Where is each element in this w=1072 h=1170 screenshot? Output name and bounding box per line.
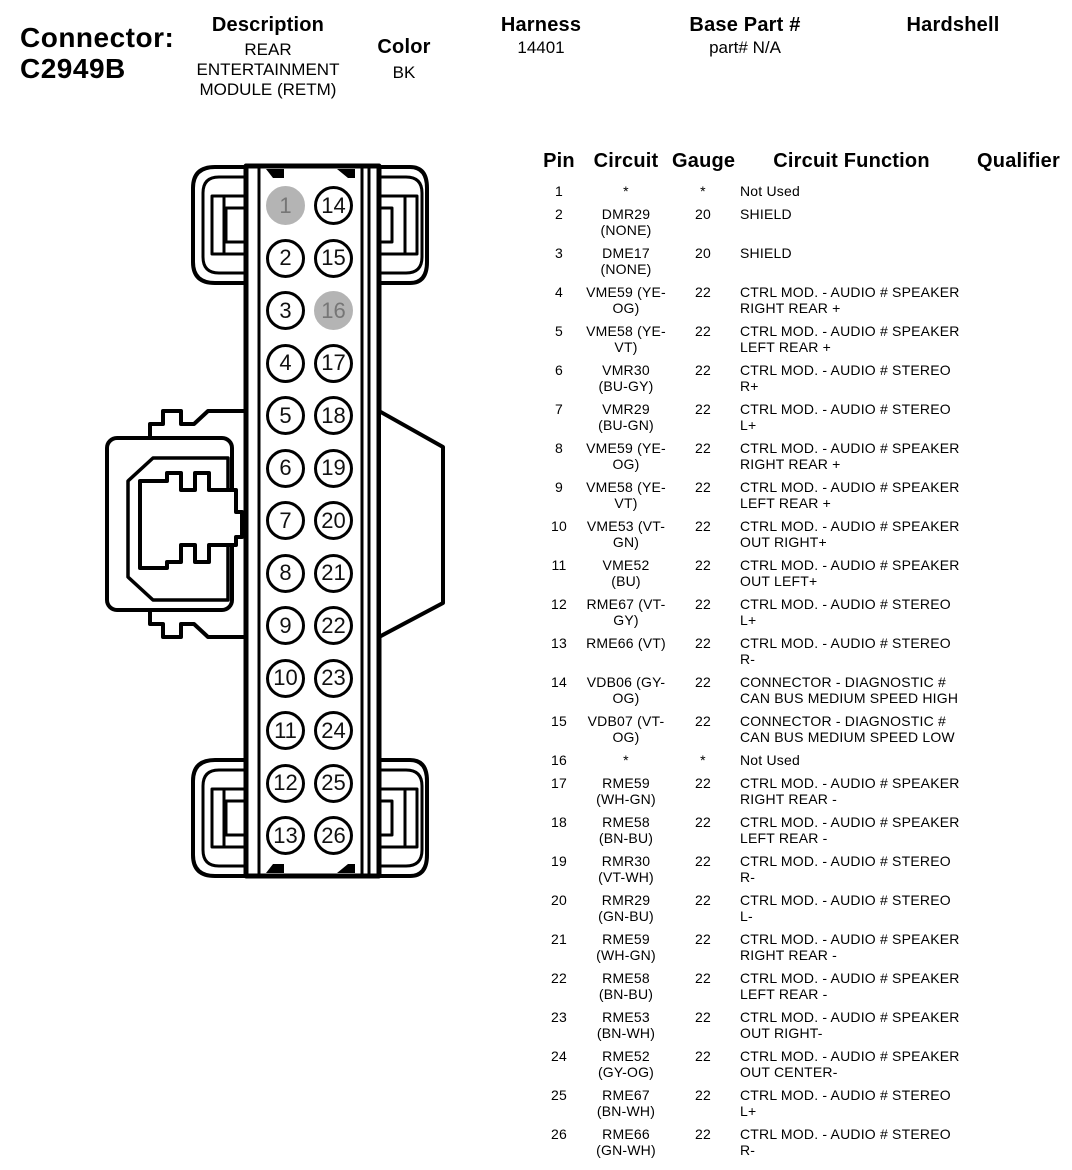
pin-number-cell: 5 [538,320,580,359]
col-header-pin: Pin [538,150,580,180]
pin-row: 1 * * Not Used [538,180,1068,203]
gauge-cell: 20 [672,203,734,242]
pin-circle: 22 [314,606,353,645]
circuit-cell: RME59 (WH-GN) [580,928,672,967]
gauge-cell: 22 [672,359,734,398]
circuit-function-cell: CTRL MOD. - AUDIO # STEREO L- [734,889,969,928]
connector-pinout-page: Connector: C2949B Description REAR ENTER… [0,0,1072,1170]
circuit-function-cell: CTRL MOD. - AUDIO # STEREO R- [734,850,969,889]
circuit-function-cell: CTRL MOD. - AUDIO # SPEAKER LEFT REAR + [734,320,969,359]
gauge-cell: 22 [672,398,734,437]
qualifier-cell [969,772,1068,811]
gauge-cell: 22 [672,476,734,515]
pin-circle: 12 [266,764,305,803]
circuit-cell: RME52 (GY-OG) [580,1045,672,1084]
qualifier-cell [969,320,1068,359]
base-part-value: part# N/A [678,38,812,58]
bottom-right-latch-ear [372,760,427,876]
pin-number-cell: 19 [538,850,580,889]
circuit-cell: VMR29 (BU-GN) [580,398,672,437]
pin-circle: 15 [314,239,353,278]
description-value: REAR ENTERTAINMENT MODULE (RETM) [178,40,358,100]
circuit-function-cell: CTRL MOD. - AUDIO # STEREO L+ [734,398,969,437]
pin-row: 6 VMR30 (BU-GY) 22 CTRL MOD. - AUDIO # S… [538,359,1068,398]
pin-number-cell: 16 [538,749,580,772]
pin-column-left: 1 2 3 4 5 6 7 8 9 10 11 12 13 [266,186,305,855]
pin-column-right: 14 15 16 17 18 19 20 21 22 23 24 25 26 [314,186,353,855]
pin-row: 9 VME58 (YE- VT) 22 CTRL MOD. - AUDIO # … [538,476,1068,515]
col-header-circuit: Circuit [580,150,672,180]
qualifier-cell [969,850,1068,889]
gauge-cell: 22 [672,1045,734,1084]
gauge-cell: 22 [672,1006,734,1045]
circuit-cell: DME17 (NONE) [580,242,672,281]
gauge-cell: 22 [672,710,734,749]
pin-circle: 20 [314,501,353,540]
color-label: Color [372,36,436,59]
side-latch-assembly [107,411,246,637]
pin-circle: 9 [266,606,305,645]
qualifier-cell [969,242,1068,281]
circuit-function-cell: CTRL MOD. - AUDIO # SPEAKER OUT LEFT+ [734,554,969,593]
circuit-function-cell: CONNECTOR - DIAGNOSTIC # CAN BUS MEDIUM … [734,710,969,749]
gauge-cell: 22 [672,850,734,889]
circuit-function-cell: CTRL MOD. - AUDIO # SPEAKER OUT CENTER- [734,1045,969,1084]
pin-circle: 8 [266,554,305,593]
pin-row: 11 VME52 (BU) 22 CTRL MOD. - AUDIO # SPE… [538,554,1068,593]
circuit-cell: * [580,180,672,203]
pin-number-cell: 10 [538,515,580,554]
circuit-function-cell: Not Used [734,749,969,772]
pin-row: 3 DME17 (NONE) 20 SHIELD [538,242,1068,281]
circuit-cell: RME66 (VT) [580,632,672,671]
pin-circle: 3 [266,291,305,330]
circuit-cell: VME59 (YE- OG) [580,281,672,320]
qualifier-cell [969,811,1068,850]
gauge-cell: 22 [672,320,734,359]
pin-row: 21 RME59 (WH-GN) 22 CTRL MOD. - AUDIO # … [538,928,1068,967]
harness-value: 14401 [488,38,594,58]
qualifier-cell [969,632,1068,671]
circuit-cell: VME52 (BU) [580,554,672,593]
pin-number-cell: 26 [538,1123,580,1162]
qualifier-cell [969,967,1068,1006]
pin-number-cell: 20 [538,889,580,928]
pin-row: 2 DMR29 (NONE) 20 SHIELD [538,203,1068,242]
pin-row: 8 VME59 (YE- OG) 22 CTRL MOD. - AUDIO # … [538,437,1068,476]
circuit-function-cell: CTRL MOD. - AUDIO # SPEAKER OUT RIGHT- [734,1006,969,1045]
pin-circle: 11 [266,711,305,750]
pin-number-cell: 21 [538,928,580,967]
circuit-function-cell: CTRL MOD. - AUDIO # SPEAKER LEFT REAR + [734,476,969,515]
pin-row: 17 RME59 (WH-GN) 22 CTRL MOD. - AUDIO # … [538,772,1068,811]
gauge-cell: 22 [672,967,734,1006]
pin-number-cell: 1 [538,180,580,203]
pin-row: 25 RME67 (BN-WH) 22 CTRL MOD. - AUDIO # … [538,1084,1068,1123]
gauge-cell: 22 [672,632,734,671]
key-notch [337,169,355,178]
pin-number-cell: 18 [538,811,580,850]
circuit-function-cell: CTRL MOD. - AUDIO # SPEAKER LEFT REAR - [734,811,969,850]
pin-circle: 4 [266,344,305,383]
pin-row: 26 RME66 (GN-WH) 22 CTRL MOD. - AUDIO # … [538,1123,1068,1162]
qualifier-cell [969,1006,1068,1045]
pin-circle: 5 [266,396,305,435]
pin-circle: 16 [314,291,353,330]
qualifier-cell [969,671,1068,710]
pin-circle: 7 [266,501,305,540]
pin-number-cell: 6 [538,359,580,398]
circuit-function-cell: CTRL MOD. - AUDIO # SPEAKER RIGHT REAR + [734,281,969,320]
key-notch [266,864,284,873]
gauge-cell: 22 [672,593,734,632]
qualifier-cell [969,359,1068,398]
gauge-cell: 22 [672,772,734,811]
circuit-cell: VME58 (YE- VT) [580,320,672,359]
gauge-cell: 22 [672,811,734,850]
circuit-cell: DMR29 (NONE) [580,203,672,242]
circuit-cell: RMR30 (VT-WH) [580,850,672,889]
pin-row: 19 RMR30 (VT-WH) 22 CTRL MOD. - AUDIO # … [538,850,1068,889]
qualifier-cell [969,437,1068,476]
circuit-cell: VDB07 (VT- OG) [580,710,672,749]
pin-number-cell: 7 [538,398,580,437]
pin-number-cell: 14 [538,671,580,710]
circuit-function-cell: CTRL MOD. - AUDIO # STEREO L+ [734,593,969,632]
qualifier-cell [969,889,1068,928]
circuit-function-cell: CTRL MOD. - AUDIO # SPEAKER RIGHT REAR - [734,928,969,967]
qualifier-cell [969,203,1068,242]
circuit-cell: RME59 (WH-GN) [580,772,672,811]
top-right-latch-ear [372,167,427,283]
circuit-cell: RME67 (VT- GY) [580,593,672,632]
gauge-cell: 22 [672,928,734,967]
pin-number-cell: 13 [538,632,580,671]
connector-label: Connector: [20,22,174,53]
qualifier-cell [969,749,1068,772]
pin-circle: 6 [266,449,305,488]
pin-circle: 24 [314,711,353,750]
circuit-function-cell: CTRL MOD. - AUDIO # STEREO L+ [734,1084,969,1123]
circuit-cell: RMR29 (GN-BU) [580,889,672,928]
circuit-function-cell: CTRL MOD. - AUDIO # SPEAKER LEFT REAR - [734,967,969,1006]
circuit-cell: RME58 (BN-BU) [580,967,672,1006]
pin-row: 13 RME66 (VT) 22 CTRL MOD. - AUDIO # STE… [538,632,1068,671]
color-value: BK [372,63,436,83]
pin-row: 22 RME58 (BN-BU) 22 CTRL MOD. - AUDIO # … [538,967,1068,1006]
connector-title: Connector: C2949B [20,22,174,84]
pin-circle: 14 [314,186,353,225]
side-wedge [379,411,443,637]
gauge-cell: 22 [672,554,734,593]
gauge-cell: 22 [672,515,734,554]
pin-number-cell: 2 [538,203,580,242]
pin-circle: 13 [266,816,305,855]
pin-row: 24 RME52 (GY-OG) 22 CTRL MOD. - AUDIO # … [538,1045,1068,1084]
pin-number-cell: 9 [538,476,580,515]
circuit-cell: RME67 (BN-WH) [580,1084,672,1123]
circuit-cell: * [580,749,672,772]
pin-row: 16 * * Not Used [538,749,1068,772]
key-notch [266,169,284,178]
pin-number-cell: 22 [538,967,580,1006]
pin-row: 5 VME58 (YE- VT) 22 CTRL MOD. - AUDIO # … [538,320,1068,359]
pin-number-cell: 4 [538,281,580,320]
qualifier-cell [969,554,1068,593]
gauge-cell: 22 [672,671,734,710]
pin-circle: 2 [266,239,305,278]
pin-table-header-row: Pin Circuit Gauge Circuit Function Quali… [538,150,1068,180]
pin-row: 7 VMR29 (BU-GN) 22 CTRL MOD. - AUDIO # S… [538,398,1068,437]
pin-row: 20 RMR29 (GN-BU) 22 CTRL MOD. - AUDIO # … [538,889,1068,928]
circuit-function-cell: CTRL MOD. - AUDIO # STEREO R- [734,632,969,671]
qualifier-cell [969,928,1068,967]
gauge-cell: 22 [672,437,734,476]
gauge-cell: 22 [672,889,734,928]
harness-label: Harness [488,14,594,37]
base-part-label: Base Part # [678,14,812,37]
pin-row: 23 RME53 (BN-WH) 22 CTRL MOD. - AUDIO # … [538,1006,1068,1045]
key-notch [337,864,355,873]
circuit-function-cell: CTRL MOD. - AUDIO # SPEAKER RIGHT REAR + [734,437,969,476]
pin-circle: 21 [314,554,353,593]
connector-id: C2949B [20,53,174,84]
qualifier-cell [969,710,1068,749]
pin-circle: 18 [314,396,353,435]
qualifier-cell [969,281,1068,320]
description-label: Description [178,14,358,37]
pin-number-cell: 3 [538,242,580,281]
qualifier-cell [969,1123,1068,1162]
pin-table: Pin Circuit Gauge Circuit Function Quali… [538,150,1068,1162]
qualifier-cell [969,515,1068,554]
qualifier-cell [969,398,1068,437]
circuit-function-cell: SHIELD [734,242,969,281]
pin-row: 10 VME53 (VT- GN) 22 CTRL MOD. - AUDIO #… [538,515,1068,554]
gauge-cell: 22 [672,1123,734,1162]
col-header-gauge: Gauge [672,150,734,180]
col-header-qualifier: Qualifier [969,150,1068,180]
gauge-cell: * [672,180,734,203]
top-left-latch-ear [193,167,246,283]
pin-number-cell: 15 [538,710,580,749]
pin-circle: 1 [266,186,305,225]
pin-circle: 25 [314,764,353,803]
qualifier-cell [969,593,1068,632]
circuit-cell: RME58 (BN-BU) [580,811,672,850]
col-header-function: Circuit Function [734,150,969,180]
hardshell-label: Hardshell [898,14,1008,37]
pin-number-cell: 11 [538,554,580,593]
circuit-cell: RME53 (BN-WH) [580,1006,672,1045]
circuit-cell: VME59 (YE- OG) [580,437,672,476]
pin-row: 12 RME67 (VT- GY) 22 CTRL MOD. - AUDIO #… [538,593,1068,632]
circuit-function-cell: CTRL MOD. - AUDIO # SPEAKER OUT RIGHT+ [734,515,969,554]
bottom-left-latch-ear [193,760,246,876]
circuit-function-cell: CONNECTOR - DIAGNOSTIC # CAN BUS MEDIUM … [734,671,969,710]
gauge-cell: 20 [672,242,734,281]
circuit-function-cell: Not Used [734,180,969,203]
circuit-function-cell: CTRL MOD. - AUDIO # SPEAKER RIGHT REAR - [734,772,969,811]
circuit-cell: VMR30 (BU-GY) [580,359,672,398]
pin-row: 14 VDB06 (GY- OG) 22 CONNECTOR - DIAGNOS… [538,671,1068,710]
pin-number-cell: 8 [538,437,580,476]
qualifier-cell [969,476,1068,515]
pin-row: 15 VDB07 (VT- OG) 22 CONNECTOR - DIAGNOS… [538,710,1068,749]
circuit-function-cell: SHIELD [734,203,969,242]
gauge-cell: * [672,749,734,772]
pin-circle: 17 [314,344,353,383]
circuit-function-cell: CTRL MOD. - AUDIO # STEREO R- [734,1123,969,1162]
circuit-cell: RME66 (GN-WH) [580,1123,672,1162]
qualifier-cell [969,1045,1068,1084]
gauge-cell: 22 [672,281,734,320]
qualifier-cell [969,1084,1068,1123]
pin-circle: 26 [314,816,353,855]
pin-row: 4 VME59 (YE- OG) 22 CTRL MOD. - AUDIO # … [538,281,1068,320]
pin-number-cell: 24 [538,1045,580,1084]
qualifier-cell [969,180,1068,203]
circuit-cell: VME58 (YE- VT) [580,476,672,515]
pin-number-cell: 25 [538,1084,580,1123]
circuit-cell: VDB06 (GY- OG) [580,671,672,710]
pin-circle: 10 [266,659,305,698]
pin-circle: 19 [314,449,353,488]
gauge-cell: 22 [672,1084,734,1123]
circuit-cell: VME53 (VT- GN) [580,515,672,554]
pin-row: 18 RME58 (BN-BU) 22 CTRL MOD. - AUDIO # … [538,811,1068,850]
pin-number-cell: 12 [538,593,580,632]
circuit-function-cell: CTRL MOD. - AUDIO # STEREO R+ [734,359,969,398]
pin-circle: 23 [314,659,353,698]
pin-number-cell: 23 [538,1006,580,1045]
pin-number-cell: 17 [538,772,580,811]
